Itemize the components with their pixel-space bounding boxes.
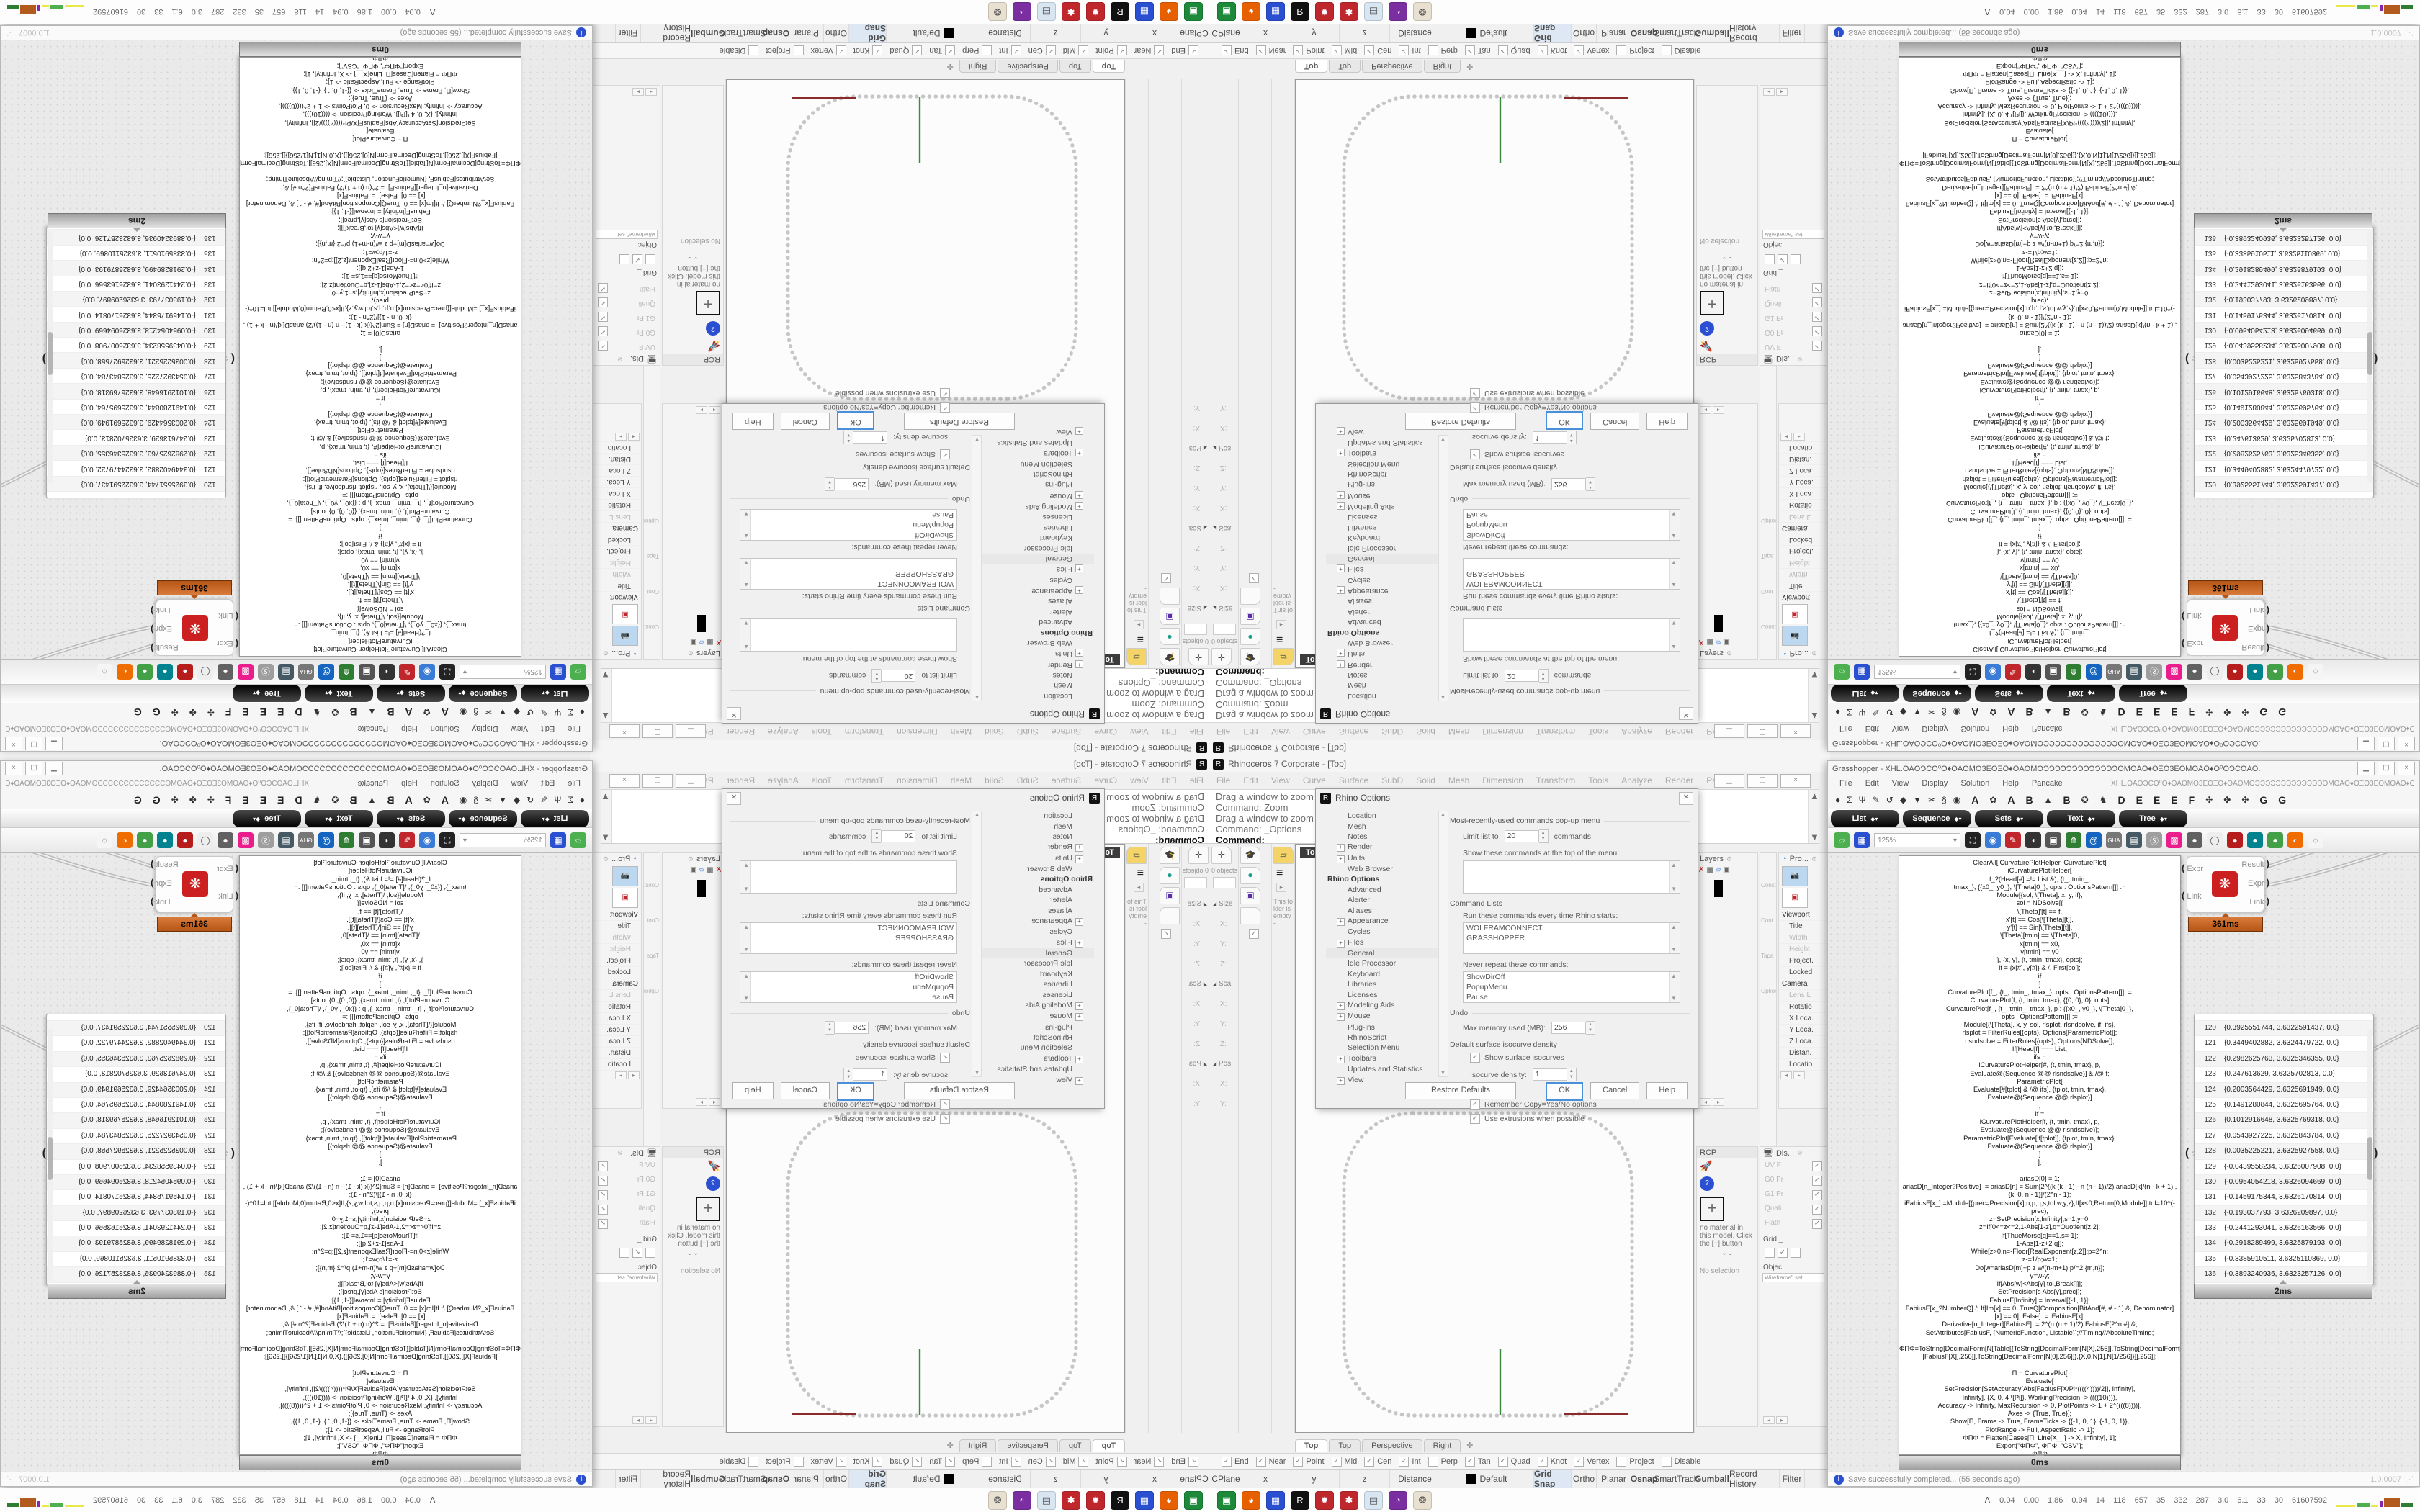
tree-item-selection-menu[interactable]: Selection Menu xyxy=(1326,1043,1440,1053)
gh-toolbar-icon-14[interactable]: ● xyxy=(218,664,233,680)
tray-expand-icon[interactable]: ᐱ xyxy=(430,7,436,17)
ribbon-tab-G[interactable]: G xyxy=(2278,706,2286,718)
taskbar-app-icon-4[interactable]: ✹ xyxy=(1086,1491,1105,1510)
osnap-disable-checkbox[interactable] xyxy=(748,1457,758,1467)
layer-checker-icon[interactable]: ▦ xyxy=(707,638,713,646)
menu-item-pancake[interactable]: Pancake xyxy=(351,724,394,733)
gear-icon[interactable]: ⚙ xyxy=(603,649,609,657)
UV F-checkbox[interactable] xyxy=(598,341,608,351)
status-pane-record-history[interactable]: Record History xyxy=(1729,1470,1780,1488)
ribbon-tab-✣[interactable]: ✣ xyxy=(2241,795,2249,805)
gear-icon[interactable]: ⚙ xyxy=(688,855,694,863)
ribbon-tab-E[interactable]: E xyxy=(2154,794,2160,806)
taskbar-app-icon-1[interactable]: ◕ xyxy=(1160,3,1178,22)
property-row-z-loca-[interactable]: Z Loca. xyxy=(593,464,641,476)
status-pane-y[interactable]: y xyxy=(1080,24,1131,42)
property-row-lens-l[interactable]: Lens L xyxy=(593,510,641,522)
rocket-icon[interactable]: 🚀 xyxy=(663,1158,723,1174)
tree-item-libraries[interactable]: Libraries xyxy=(1326,523,1440,533)
gh-tab-pill-text[interactable]: Text◆▾ xyxy=(2047,810,2115,827)
property-row-rotatio[interactable]: Rotatio xyxy=(593,499,641,510)
menu-item-subd[interactable]: SubD xyxy=(1375,726,1410,737)
tree-item-general[interactable]: General xyxy=(980,948,1094,958)
table-row-122[interactable]: 122{0.2982625763, 3.6325346355, 0.0} xyxy=(47,445,225,460)
property-row-x-loca-[interactable]: X Loca. xyxy=(593,487,641,499)
property-row-width[interactable]: Width xyxy=(593,932,641,944)
osnap-cen-checkbox[interactable] xyxy=(1364,45,1374,55)
ribbon-tab-♞[interactable]: ♞ xyxy=(313,707,321,717)
render-frame-button[interactable]: ▣ xyxy=(612,604,638,624)
tree-scrollbar[interactable]: ▲▼ xyxy=(972,435,982,701)
table-row-126[interactable]: 126{0.1012916648, 3.6325769318, 0.0} xyxy=(47,383,225,398)
gh-toolbar-icon-13[interactable]: ▩ xyxy=(238,664,254,680)
table-row-126[interactable]: 126{0.1012916648, 3.6325769318, 0.0} xyxy=(47,1113,225,1128)
boxedit-group-pos[interactable]: ◢ Pos xyxy=(1212,444,1238,452)
taskbar-app-icon-2[interactable]: ▦ xyxy=(1135,1491,1154,1510)
gh-toolbar-icon-1[interactable]: ▦ xyxy=(550,832,566,848)
menu-item-pancake[interactable]: Pancake xyxy=(2026,724,2069,733)
ribbon-icon[interactable]: ● xyxy=(1835,707,1840,717)
tree-item-mesh[interactable]: Mesh xyxy=(1326,680,1440,690)
menu-item-dimension[interactable]: Dimension xyxy=(1476,775,1530,786)
close-button[interactable]: × xyxy=(2398,762,2415,775)
max-memory-stepper[interactable]: 256▲▼ xyxy=(825,1021,869,1035)
osnap-int-checkbox[interactable] xyxy=(1011,1457,1021,1467)
menu-item-file[interactable]: File xyxy=(562,779,586,788)
table-row-121[interactable]: 121{0.3449402882, 3.6324479722, 0.0} xyxy=(47,1036,225,1051)
menu-item-edit[interactable]: Edit xyxy=(1237,775,1265,786)
tree-scrollbar[interactable]: ▲▼ xyxy=(1438,435,1448,701)
display-hscroll[interactable]: ◂▸ xyxy=(631,87,658,96)
tree-item-cycles[interactable]: Cycles xyxy=(980,927,1094,937)
osnap-end-checkbox[interactable] xyxy=(1188,1457,1198,1467)
status-pane-x[interactable]: x xyxy=(1131,24,1178,42)
gh-toolbar-icon-5[interactable]: ✎ xyxy=(399,664,415,680)
wolfram-component[interactable]: ( Expr ( Link Result ) Expr ) Link ) ❋ xyxy=(156,600,233,656)
osnap-quad-checkbox[interactable] xyxy=(1498,45,1508,55)
command-scrollbar[interactable]: ▲▼ xyxy=(1808,669,1819,722)
G0 Pr-checkbox[interactable] xyxy=(598,326,608,336)
materials-chevrons[interactable]: ⌄⌄ xyxy=(1697,255,1757,263)
osnap-disable-checkbox[interactable] xyxy=(748,45,758,55)
ribbon-icon[interactable]: ✎ xyxy=(540,707,547,717)
rcp-tab-label[interactable]: RCP xyxy=(1700,1148,1716,1157)
show-isocurves-checkbox[interactable] xyxy=(940,449,950,459)
menu-item-pancake[interactable]: Pancake xyxy=(351,779,394,788)
status-pane-gumball[interactable]: Gumball xyxy=(1695,1470,1729,1488)
gh-toolbar-icon-17[interactable]: ● xyxy=(157,832,173,848)
tree-item-idle-processor[interactable]: Idle Processor xyxy=(980,543,1094,553)
table-row-124[interactable]: 124{0.2003564429, 3.6325691949, 0.0} xyxy=(47,1083,225,1098)
gh-toolbar-icon-13[interactable]: ▩ xyxy=(238,832,254,848)
rocket-icon[interactable]: 🚀 xyxy=(1697,1158,1757,1174)
status-pane-record-history[interactable]: Record History xyxy=(640,24,691,42)
display-hscroll[interactable]: ◂▸ xyxy=(631,1416,658,1425)
table-row-132[interactable]: 132{-0.193037793, 3.6326209897, 0.0} xyxy=(47,291,225,306)
delete-layer-icon[interactable]: ✗ xyxy=(1698,638,1704,646)
tree-item-advanced[interactable]: Advanced xyxy=(980,885,1094,895)
Quali-checkbox[interactable] xyxy=(598,1205,608,1215)
panel-tab-icon[interactable] xyxy=(1161,573,1171,583)
gh-tab-pill-sequence[interactable]: Sequence◆▾ xyxy=(1903,685,1971,702)
mru-commands-listbox[interactable]: ▲▼ xyxy=(740,618,957,652)
listbox-item[interactable]: GRASSHOPPER xyxy=(1464,933,1680,943)
ribbon-icon[interactable]: ◆ xyxy=(1900,707,1906,717)
gh-toolbar-icon-12[interactable]: Ⓢ xyxy=(2146,664,2162,680)
G0 Pr-checkbox[interactable] xyxy=(1812,1176,1822,1186)
osnap-project-checkbox[interactable] xyxy=(1616,45,1626,55)
maximize-button[interactable]: ▢ xyxy=(2378,762,2395,775)
menu-item-tools[interactable]: Tools xyxy=(805,775,838,786)
viewport-tab-top-1[interactable]: Top xyxy=(1329,1439,1361,1452)
port-expr-in[interactable]: Expr xyxy=(217,639,233,647)
use-extrusions-checkbox[interactable] xyxy=(1470,1114,1480,1124)
listbox-item[interactable]: WOLFRAMCONNECT xyxy=(1464,923,1680,933)
osnap-int-checkbox[interactable] xyxy=(1399,1457,1409,1467)
osnap-knot-checkbox[interactable] xyxy=(872,45,882,55)
dialog-titlebar[interactable]: R Rhino Options ✕ xyxy=(722,706,1104,723)
gh-toolbar-icon-6[interactable]: ◖ xyxy=(379,664,395,680)
property-row-width[interactable]: Width xyxy=(1779,568,1827,580)
ribbon-tab-♞[interactable]: ♞ xyxy=(313,795,321,805)
display-mode-field[interactable]: Wireframe" set xyxy=(1762,230,1824,239)
status-pane-grid-snap[interactable]: Grid Snap xyxy=(1534,24,1572,42)
copy-layer-icon[interactable]: ▣ xyxy=(690,866,696,874)
expand-arrow-icon[interactable]: ▸ xyxy=(1276,883,1286,892)
tree-item-notes[interactable]: Notes xyxy=(1326,670,1440,680)
ribbon-tab-E[interactable]: E xyxy=(277,706,284,718)
table-scrollbar[interactable] xyxy=(2367,231,2372,483)
rhino-titlebar[interactable]: R Rhinoceros 7 Corporate - [Top] xyxy=(1210,756,1830,772)
property-row-locked[interactable]: Locked xyxy=(593,534,641,545)
properties-hscroll[interactable]: ◂▸ xyxy=(1779,432,1827,441)
rhino-titlebar[interactable]: R Rhinoceros 7 Corporate - [Top] xyxy=(590,756,1210,772)
osnap-disable-checkbox[interactable] xyxy=(1662,1457,1672,1467)
listbox-item[interactable]: PopupMenu xyxy=(740,982,956,992)
status-pane-grid-snap[interactable]: Grid Snap xyxy=(848,24,886,42)
port-link-in[interactable]: Link xyxy=(2187,892,2201,901)
point-cloud-squircle-curve[interactable] xyxy=(1344,1113,1632,1416)
tree-item-cycles[interactable]: Cycles xyxy=(1326,927,1440,937)
taskbar-app-icon-8[interactable]: ❂ xyxy=(1413,1491,1432,1510)
G1 Pr-checkbox[interactable] xyxy=(598,312,608,322)
table-row-123[interactable]: 123{0.247613629, 3.6325702813, 0.0} xyxy=(47,429,225,444)
tree-item-rhinoscript[interactable]: RhinoScript xyxy=(980,469,1094,480)
property-row-locked[interactable]: Locked xyxy=(593,967,641,978)
rcp-tab-label[interactable]: RCP xyxy=(704,355,720,364)
osnap-perp-checkbox[interactable] xyxy=(1428,1457,1438,1467)
ribbon-tab-▲[interactable]: ▲ xyxy=(2044,707,2053,717)
tree-item-modeling-aids[interactable]: +Modeling Aids xyxy=(980,1000,1094,1011)
status-pane-smarttrack[interactable]: SmartTrack xyxy=(725,24,763,42)
gh-toolbar-icon-15[interactable]: ◯ xyxy=(197,664,213,680)
zoom-level-dropdown[interactable]: 125%▾ xyxy=(460,665,546,679)
status-pane-z[interactable]: z xyxy=(1340,24,1390,42)
status-pane-smarttrack[interactable]: SmartTrack xyxy=(1657,24,1695,42)
listbox-item[interactable]: WOLFRAMCONNECT xyxy=(1464,579,1680,589)
ribbon-icon[interactable]: ● xyxy=(1835,795,1840,805)
panel-tab-icon[interactable]: ▣ xyxy=(1160,887,1180,904)
gh-tab-pill-text[interactable]: Text◆▾ xyxy=(2047,685,2115,702)
show-isocurves-checkbox[interactable] xyxy=(1470,449,1480,459)
grid-axes-checkbox[interactable] xyxy=(1778,254,1788,264)
Quali-checkbox[interactable] xyxy=(1812,297,1822,307)
table-row-127[interactable]: 127{0.0543927225, 3.6325843784, 0.0} xyxy=(2195,1129,2373,1144)
rhino-options-dialog[interactable]: R Rhino Options ✕ LocationMeshNotes+Rend… xyxy=(722,788,1105,1109)
table-row-132[interactable]: 132{-0.193037793, 3.6326209897, 0.0} xyxy=(47,1206,225,1221)
ribbon-tab-B[interactable]: B xyxy=(2063,794,2071,806)
ribbon-tab-G[interactable]: G xyxy=(2259,706,2267,718)
help-icon[interactable]: ? xyxy=(1700,321,1714,336)
status-pane-grid-snap[interactable]: Grid Snap xyxy=(848,1470,886,1488)
status-pane-ortho[interactable]: Ortho xyxy=(823,24,848,42)
gh-toolbar-icon-11[interactable]: ▤ xyxy=(2126,832,2142,848)
display-mode-field[interactable]: Wireframe" set xyxy=(596,230,658,239)
use-extrusions-checkbox[interactable] xyxy=(940,1114,950,1124)
gh-toolbar-icon-8[interactable]: ⟰ xyxy=(2066,664,2081,680)
property-row-title[interactable]: Title xyxy=(593,921,641,932)
boxedit-group-size[interactable]: ◢ Size xyxy=(1182,604,1208,612)
ribbon-tab-▲[interactable]: ▲ xyxy=(2044,795,2053,805)
table-scrollbar[interactable] xyxy=(48,1029,53,1281)
property-row-viewport[interactable]: Viewport xyxy=(1779,909,1827,921)
taskbar-app-icon-2[interactable]: ▦ xyxy=(1135,3,1154,22)
points-table-panel[interactable]: 120{0.3925551744, 3.6322591437, 0.0}121{… xyxy=(46,227,226,498)
tree-item-rhinoscript[interactable]: RhinoScript xyxy=(1326,1032,1440,1043)
menu-item-solution[interactable]: Solution xyxy=(1955,779,1995,788)
new-viewport-tab-icon[interactable]: ✛ xyxy=(1462,1439,1477,1452)
osnap-cen-checkbox[interactable] xyxy=(1046,1457,1056,1467)
dialog-close-icon[interactable]: ✕ xyxy=(727,792,741,805)
table-row-133[interactable]: 133{-0.2441293041, 3.6326163566, 0.0} xyxy=(47,276,225,291)
gh-toolbar-icon-0[interactable]: ▱ xyxy=(570,832,586,848)
taskbar-app-icon-6[interactable]: ▤ xyxy=(1037,1491,1056,1510)
status-pane-distance[interactable]: Distance xyxy=(1390,1470,1440,1488)
property-row-rotatio[interactable]: Rotatio xyxy=(1779,1002,1827,1013)
ribbon-tab-♞[interactable]: ♞ xyxy=(2099,795,2107,805)
expand-arrow-icon[interactable]: ▸ xyxy=(1134,883,1144,892)
hamburger-icon[interactable]: ≡ xyxy=(1276,867,1290,880)
ribbon-tab-E[interactable]: E xyxy=(2171,794,2177,806)
ribbon-icon[interactable]: ↺ xyxy=(1886,707,1894,717)
status-pane-y[interactable]: y xyxy=(1080,1470,1131,1488)
osnap-quad-checkbox[interactable] xyxy=(912,45,922,55)
listbox-item[interactable]: ShowDirOff xyxy=(740,530,956,540)
maximize-button[interactable]: ▢ xyxy=(642,774,673,788)
grid-z-checkbox[interactable] xyxy=(1791,254,1801,264)
property-row-x-loca-[interactable]: X Loca. xyxy=(593,1013,641,1025)
ribbon-tab-E[interactable]: E xyxy=(2154,706,2160,718)
minimize-button[interactable]: ▁ xyxy=(1714,724,1744,738)
startup-commands-listbox[interactable]: WOLFRAMCONNECTGRASSHOPPER▲▼ xyxy=(1463,558,1680,590)
show-isocurves-checkbox[interactable] xyxy=(940,1053,950,1063)
status-pane-z[interactable]: z xyxy=(1030,24,1080,42)
panel-tab-icon[interactable]: ▣ xyxy=(1240,608,1260,625)
property-row-height[interactable]: Height xyxy=(1779,557,1827,568)
remember-copy-checkbox[interactable] xyxy=(1470,1099,1480,1110)
table-row-124[interactable]: 124{0.2003564429, 3.6325691949, 0.0} xyxy=(47,414,225,429)
port-link-out[interactable]: Link xyxy=(156,898,170,906)
menu-item-help[interactable]: Help xyxy=(1996,779,2025,788)
close-button[interactable]: × xyxy=(1780,724,1811,738)
grid-checkbox[interactable] xyxy=(645,254,655,264)
mru-commands-listbox[interactable]: ▲▼ xyxy=(1463,860,1680,894)
status-pane-distance[interactable]: Distance xyxy=(1390,24,1440,42)
tree-item-rhino-options[interactable]: Rhino Options xyxy=(1326,874,1440,884)
gh-toolbar-icon-3[interactable]: ⛶ xyxy=(439,832,455,848)
taskbar-app-icon-6[interactable]: ▤ xyxy=(1037,3,1056,22)
tree-item-alerter[interactable]: Alerter xyxy=(980,607,1094,617)
close-button[interactable]: × xyxy=(609,774,640,788)
status-pane-gumball[interactable]: Gumball xyxy=(691,24,725,42)
mathematica-code-panel[interactable]: ClearAll[iCurvaturePlotHelper, Curvature… xyxy=(1899,57,2181,657)
close-button[interactable]: × xyxy=(1780,774,1811,788)
tree-item-web-browser[interactable]: Web Browser xyxy=(980,638,1094,648)
gh-toolbar-icon-4[interactable]: ◉ xyxy=(1985,832,2001,848)
tree-item-rhino-options[interactable]: Rhino Options xyxy=(980,627,1094,637)
menu-item-render[interactable]: Render xyxy=(720,726,761,737)
panel-tab-icon[interactable]: ● xyxy=(1240,628,1260,645)
tree-item-alerter[interactable]: Alerter xyxy=(980,895,1094,905)
menu-item-edit[interactable]: Edit xyxy=(1155,726,1183,737)
boxedit-group-size[interactable]: ◢ Size xyxy=(1212,900,1238,908)
tree-item-general[interactable]: General xyxy=(1326,948,1440,958)
new-viewport-tab-icon[interactable]: ✛ xyxy=(943,60,958,73)
close-button[interactable]: × xyxy=(5,737,22,751)
tree-item-web-browser[interactable]: Web Browser xyxy=(1326,638,1440,648)
menu-item-render[interactable]: Render xyxy=(1659,775,1700,786)
table-row-120[interactable]: 120{0.3925551744, 3.6322591437, 0.0} xyxy=(2195,1021,2373,1036)
taskbar-app-icon-8[interactable]: ❂ xyxy=(988,3,1007,22)
menu-item-transform[interactable]: Transform xyxy=(838,775,890,786)
new-viewport-tab-icon[interactable]: ✛ xyxy=(943,1439,958,1452)
gear-icon[interactable]: ⚙ xyxy=(688,649,694,657)
port-link-in[interactable]: Link xyxy=(2187,611,2201,620)
osnap-vertex-checkbox[interactable] xyxy=(836,1457,846,1467)
listbox-item[interactable]: Pause xyxy=(1464,510,1680,520)
ribbon-icon[interactable]: Ψ xyxy=(1859,707,1866,717)
gh-toolbar-icon-6[interactable]: ◖ xyxy=(379,832,395,848)
ribbon-icon[interactable]: ◆ xyxy=(514,707,520,717)
minimize-button[interactable]: ▁ xyxy=(45,762,63,775)
mathematica-code-panel[interactable]: ClearAll[iCurvaturePlotHelper, Curvature… xyxy=(239,855,521,1455)
menu-item-curve[interactable]: Curve xyxy=(1296,775,1332,786)
ribbon-tab-F[interactable]: F xyxy=(225,706,232,718)
taskbar-app-icon-7[interactable]: ◔ xyxy=(1389,1491,1407,1510)
dialog-titlebar[interactable]: R Rhino Options ✕ xyxy=(1316,706,1698,723)
tree-item-selection-menu[interactable]: Selection Menu xyxy=(1326,459,1440,469)
tray-expand-icon[interactable]: ᐱ xyxy=(430,1495,436,1505)
viewport-tab-top-0[interactable]: Top xyxy=(1093,1439,1125,1452)
startup-commands-listbox[interactable]: WOLFRAMCONNECTGRASSHOPPER▲▼ xyxy=(1463,922,1680,954)
osnap-vertex-checkbox[interactable] xyxy=(1574,45,1584,55)
tree-item-licenses[interactable]: Licenses xyxy=(1326,989,1440,999)
table-row-120[interactable]: 120{0.3925551744, 3.6322591437, 0.0} xyxy=(2195,476,2373,491)
ribbon-icon[interactable]: ▼ xyxy=(498,707,507,717)
ribbon-tab-E[interactable]: E xyxy=(2171,706,2177,718)
add-material-button[interactable]: + xyxy=(696,1197,720,1221)
port-link-out[interactable]: Link xyxy=(2249,898,2264,906)
menu-item-analyze[interactable]: Analyze xyxy=(761,726,805,737)
ribbon-tab-✤[interactable]: ✤ xyxy=(189,795,197,805)
property-row-viewport[interactable]: Viewport xyxy=(1779,591,1827,603)
grid-axes-checkbox[interactable] xyxy=(1778,1248,1788,1258)
table-row-125[interactable]: 125{0.1491280844, 3.6325695764, 0.0} xyxy=(47,399,225,414)
menu-item-file[interactable]: File xyxy=(1834,779,1858,788)
osnap-end-checkbox[interactable] xyxy=(1222,1457,1232,1467)
gh-toolbar-icon-5[interactable]: ✎ xyxy=(2005,832,2021,848)
property-row-camera[interactable]: Camera xyxy=(1779,522,1827,534)
table-row-134[interactable]: 134{-0.2918289499, 3.6325879193, 0.0} xyxy=(2195,260,2373,275)
add-material-button[interactable]: + xyxy=(696,291,720,315)
panel-tab-icon[interactable]: ● xyxy=(1160,628,1180,645)
tree-item-rhino-options[interactable]: Rhino Options xyxy=(1326,627,1440,637)
help-icon[interactable]: ? xyxy=(706,321,720,336)
new-layer-icon[interactable]: ▱ xyxy=(699,866,704,874)
tree-item-libraries[interactable]: Libraries xyxy=(980,523,1094,533)
taskbar-app-icon-5[interactable]: ✱ xyxy=(1062,1491,1080,1510)
table-row-128[interactable]: 128{0.0035225221, 3.6325927558, 0.0} xyxy=(2195,1144,2373,1159)
tree-scrollbar[interactable]: ▲▼ xyxy=(1438,811,1448,1077)
gh-tab-pill-sets[interactable]: Sets◆▾ xyxy=(1975,685,2043,702)
viewport-tab-top-0[interactable]: Top xyxy=(1093,60,1125,73)
ribbon-icon[interactable]: ▼ xyxy=(498,795,507,805)
ribbon-tab-✣[interactable]: ✣ xyxy=(171,707,179,717)
osnap-cen-checkbox[interactable] xyxy=(1046,45,1056,55)
tree-item-advanced[interactable]: Advanced xyxy=(1326,885,1440,895)
gh-toolbar-icon-0[interactable]: ▱ xyxy=(1834,832,1850,848)
taskbar-app-icon-5[interactable]: ✱ xyxy=(1340,1491,1358,1510)
menu-item-edit[interactable]: Edit xyxy=(1860,724,1885,733)
status-pane-default[interactable]: Default xyxy=(886,24,980,42)
table-row-128[interactable]: 128{0.0035225221, 3.6325927558, 0.0} xyxy=(47,1144,225,1159)
isocurve-density-stepper[interactable]: 1▲▼ xyxy=(843,1068,887,1081)
mathematica-code-panel[interactable]: ClearAll[iCurvaturePlotHelper, Curvature… xyxy=(239,57,521,657)
ribbon-icon[interactable]: Ψ xyxy=(554,795,561,805)
dialog-close-icon[interactable]: ✕ xyxy=(727,707,741,720)
viewport-tab-right-3[interactable]: Right xyxy=(959,1439,997,1452)
menu-item-solution[interactable]: Solution xyxy=(425,724,465,733)
menu-item-view[interactable]: View xyxy=(1265,726,1296,737)
property-row-rotatio[interactable]: Rotatio xyxy=(1779,499,1827,510)
gh-toolbar-icon-11[interactable]: ▤ xyxy=(2126,664,2142,680)
port-result-out[interactable]: Result xyxy=(2241,643,2264,652)
status-pane-y[interactable]: y xyxy=(1289,24,1340,42)
ribbon-icon[interactable]: ◉ xyxy=(1953,795,1960,805)
delete-layer-icon[interactable]: ✗ xyxy=(716,866,722,874)
osnap-project-checkbox[interactable] xyxy=(1616,1457,1626,1467)
layer-color-swatch[interactable] xyxy=(1714,615,1723,632)
tree-item-licenses[interactable]: Licenses xyxy=(1326,512,1440,522)
menu-item-file[interactable]: File xyxy=(1183,726,1210,737)
viewport-properties-button[interactable]: 📷 xyxy=(1782,866,1808,886)
folder-icon[interactable]: ▱ xyxy=(1273,847,1294,864)
panel-tab-icon[interactable]: ● xyxy=(1240,867,1260,884)
ribbon-icon[interactable]: ◆ xyxy=(514,795,520,805)
table-row-121[interactable]: 121{0.3449402882, 3.6324479722, 0.0} xyxy=(2195,460,2373,475)
resize-grip[interactable]: ⋰ xyxy=(2406,1475,2414,1484)
tree-item-alerter[interactable]: Alerter xyxy=(1326,895,1440,905)
ribbon-icon[interactable]: Ψ xyxy=(1859,795,1866,805)
osnap-project-checkbox[interactable] xyxy=(794,1457,804,1467)
menu-item-transform[interactable]: Transform xyxy=(838,726,890,737)
property-row-locatio[interactable]: Locatio xyxy=(593,1059,641,1071)
ok-button[interactable]: OK xyxy=(1546,1082,1583,1101)
point-cloud-squircle-curve[interactable] xyxy=(788,96,1076,399)
ribbon-tab-G[interactable]: G xyxy=(153,706,161,718)
property-row-locatio[interactable]: Locatio xyxy=(593,441,641,453)
viewport-tab-top-1[interactable]: Top xyxy=(1059,60,1091,73)
